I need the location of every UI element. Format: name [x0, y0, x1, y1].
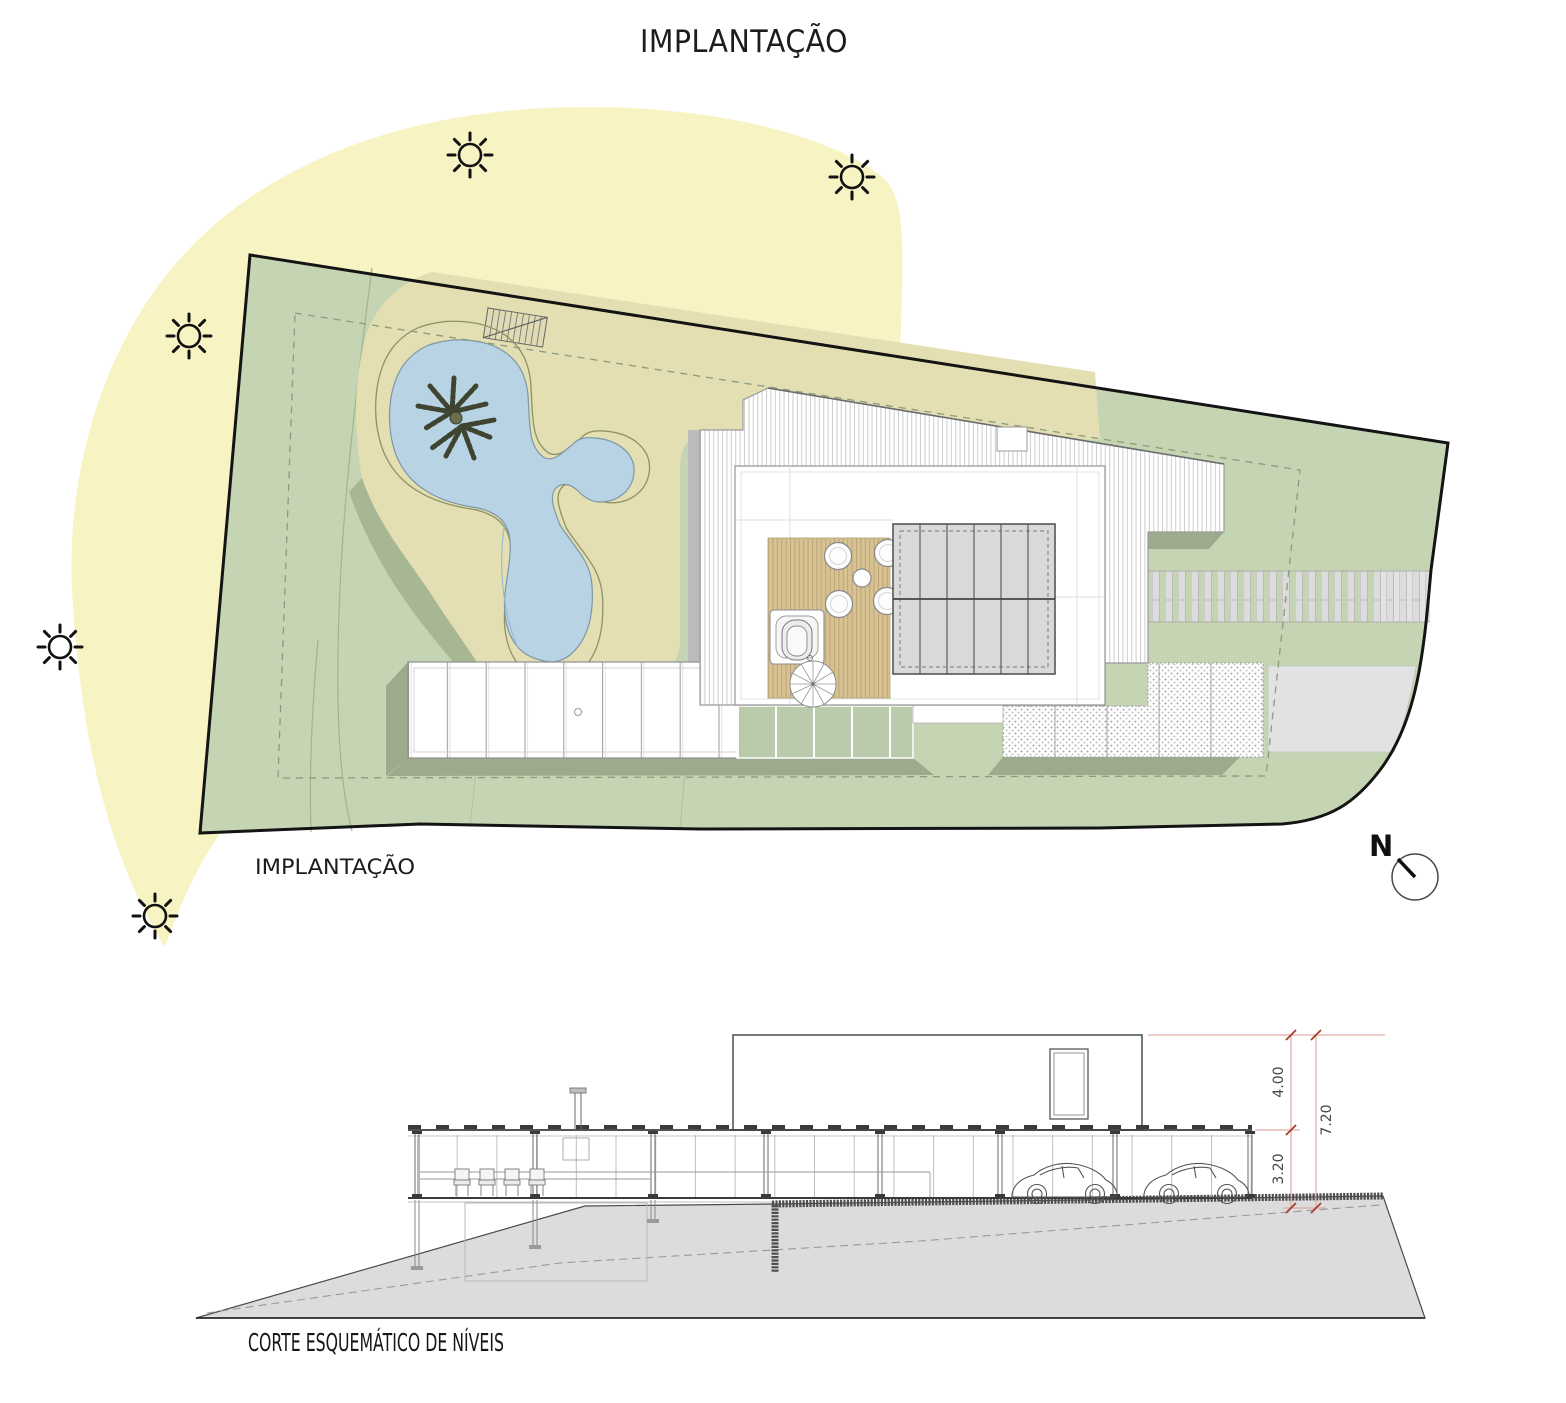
- driveway-apron: [1268, 666, 1416, 752]
- drawing-sheet: N IMPLANTAÇÃO IMPLANTAÇÃO: [0, 0, 1566, 1403]
- spiral-stair-icon: [790, 661, 836, 707]
- roof-band: [913, 703, 1003, 723]
- terrain: [196, 1196, 1425, 1318]
- dim-lower: 3.20: [1271, 1153, 1287, 1184]
- section-label: CORTE ESQUEMÁTICO DE NÍVEIS: [248, 1328, 504, 1357]
- dim-total: 7.20: [1319, 1104, 1335, 1135]
- level-section: 4.00 3.20 7.20 CORTE ESQUEMÁTICO DE NÍVE…: [196, 1030, 1425, 1357]
- section-window: [1050, 1049, 1088, 1119]
- architectural-drawing: N IMPLANTAÇÃO IMPLANTAÇÃO: [0, 0, 1566, 1403]
- driveway-band: [1148, 571, 1430, 622]
- dim-upper: 4.00: [1271, 1066, 1287, 1097]
- glazing-mullions: [417, 1135, 1252, 1197]
- jacuzzi: [770, 610, 824, 664]
- site-plan: N IMPLANTAÇÃO: [38, 107, 1448, 947]
- patio-shadow: [988, 757, 1240, 775]
- pergola: [893, 524, 1055, 674]
- roof-terrace: [735, 466, 1105, 707]
- north-arrow-icon: [1392, 854, 1438, 900]
- sheet-title: IMPLANTAÇÃO: [640, 24, 848, 60]
- north-label: N: [1369, 829, 1393, 863]
- plan-label: IMPLANTAÇÃO: [255, 853, 415, 879]
- roof-notch: [997, 427, 1027, 451]
- sun-icon: [38, 625, 82, 669]
